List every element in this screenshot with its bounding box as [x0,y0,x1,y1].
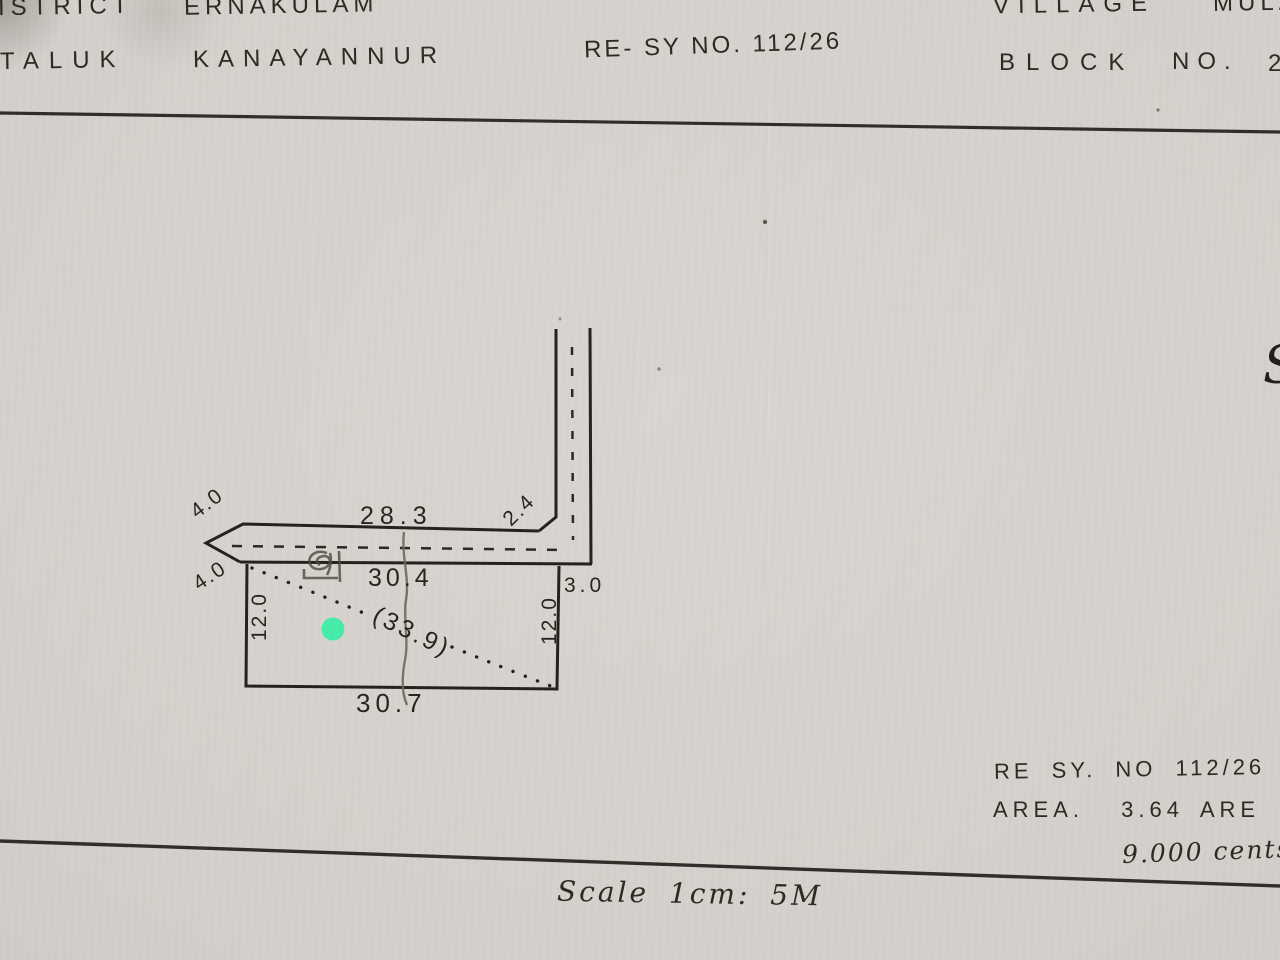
right-margin-partial-glyph: S [1263,336,1280,396]
dim-arrow-lower: 4.0 [189,556,231,595]
footer-resurvey-text: RE SY. NO 112/26 [994,754,1266,784]
dim-top-road: 28.3 [360,502,433,530]
district-value: ERNAKULAM [184,0,379,22]
dim-diagonal: (33.9) [368,601,455,663]
scale-text: Scale 1cm: 5M [557,875,823,913]
road-right-line [590,328,591,564]
survey-sketch-page: { "header": { "district_label": "ISTRICT… [0,0,1280,960]
taluk-label: TALUK [0,46,126,76]
footer-resurvey-line: RE SY. NO 112/26 Pt [994,753,1280,785]
scribble-loop [309,552,329,569]
scribble-vertical-stroke [339,551,340,582]
paper-specks [559,108,1160,370]
block-no-partial: 2 [1268,50,1280,78]
marker-dot [322,618,345,641]
taluk-value: KANAYANNUR [193,42,447,74]
dim-east-width: 3.0 [564,574,605,597]
dim-plot-left: 12.0 [248,592,271,641]
centerline-vertical [572,347,573,540]
dim-plot-top: 30.4 [368,564,433,592]
top-rule [0,113,1280,132]
village-value: MULAN [1213,0,1280,18]
block-no-label: NO. [1172,48,1239,76]
district-label: ISTRICT [0,0,134,22]
pencil-scribble [304,551,340,582]
road-left-line [539,329,556,531]
dim-plot-bottom: 30.7 [356,688,427,718]
dim-arrow-upper: 4.0 [186,483,228,523]
dimension-labels: 28.3 4.0 4.0 2.4 3.0 30.4 12.0 12.0 (33.… [186,483,605,718]
footer-area-value: 3.64 ARE [1121,797,1260,822]
speck [657,367,661,371]
footer-cents-value: 9.000 cents [1122,834,1280,869]
diagonal-segment-2 [452,647,556,688]
dim-corner: 2.4 [498,490,539,531]
dim-plot-right: 12.0 [538,596,561,645]
footer-area-label: AREA. [993,797,1084,822]
village-label: VILLAGE [993,0,1157,20]
block-label: BLOCK [999,49,1135,77]
speck [763,220,767,224]
centerline-horizontal [232,546,566,550]
speck [1156,108,1159,111]
speck [559,318,562,321]
footer-area-line: AREA. 3.64 ARE [993,797,1260,823]
